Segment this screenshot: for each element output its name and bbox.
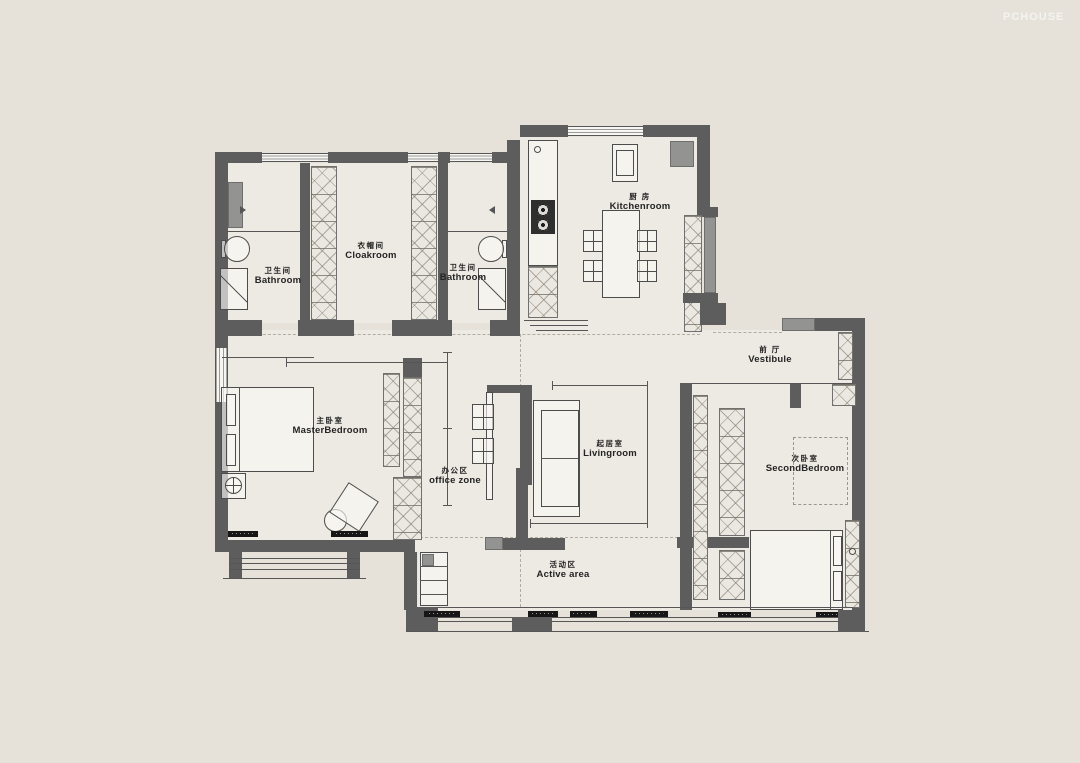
room-label-en: office zone — [429, 475, 481, 486]
room-label-zh: 衣帽间 — [345, 241, 396, 250]
dimension-line — [286, 362, 447, 363]
wall — [683, 293, 718, 303]
window — [450, 153, 492, 162]
shower-tray — [220, 268, 248, 310]
wall — [438, 163, 448, 320]
pipe-shaft — [228, 182, 243, 228]
shelf-line — [420, 594, 448, 595]
wall — [697, 137, 710, 207]
bedside-cabinet — [845, 520, 860, 608]
room-label-en: Bathroom — [255, 275, 301, 286]
wardrobe-cabinet — [383, 373, 400, 467]
flue-duct — [670, 141, 694, 167]
wall — [643, 125, 710, 137]
shelf-line — [420, 566, 448, 567]
appliance — [422, 554, 434, 566]
window-pier — [512, 617, 552, 631]
counter-fixture — [534, 146, 541, 153]
window — [262, 153, 328, 162]
shoe-cabinet — [832, 384, 856, 406]
bay-window-sill — [223, 578, 366, 579]
kitchen-sink — [612, 144, 638, 182]
wardrobe-cabinet — [719, 550, 745, 600]
balcony-window-glass — [418, 617, 853, 618]
dimension-line — [552, 385, 648, 386]
wall — [328, 152, 408, 163]
room-label-vestibule: 前 厅 Vestibule — [748, 345, 792, 365]
curtain-line — [222, 357, 314, 358]
room-label-kitchen: 厨 房 Kitchenroom — [610, 192, 671, 212]
kitchen-cabinet — [528, 266, 558, 318]
wall — [680, 548, 692, 610]
pillow — [833, 571, 842, 601]
wall — [680, 383, 692, 537]
wardrobe-cabinet — [411, 166, 437, 320]
threshold-step-line — [536, 330, 588, 331]
wardrobe-cabinet — [719, 408, 745, 536]
wall — [228, 320, 262, 336]
pillow — [226, 394, 236, 426]
room-label-bathroom-1: 卫生间 Bathroom — [255, 266, 301, 286]
wardrobe-cabinet — [311, 166, 337, 320]
bay-window-glass — [229, 558, 360, 559]
wall — [215, 540, 415, 552]
wall — [228, 152, 262, 163]
desk-chair — [472, 438, 494, 464]
wardrobe-cabinet — [403, 377, 422, 477]
window-tag — [570, 611, 597, 617]
room-label-living-room: 起居室 Livingroom — [583, 439, 637, 459]
toilet — [478, 236, 504, 262]
room-label-cloakroom: 衣帽间 Cloakroom — [345, 241, 396, 261]
wall — [503, 538, 565, 550]
shower-partition-line — [228, 231, 300, 232]
wall-light — [704, 217, 716, 293]
room-label-second-bedroom: 次卧室 SecondBedroom — [766, 454, 845, 474]
wall — [298, 320, 354, 336]
pillow — [833, 536, 842, 566]
threshold-step-line — [530, 325, 588, 326]
wall — [490, 320, 520, 336]
dimension-line — [647, 385, 648, 523]
wall — [300, 163, 310, 320]
room-label-zh: 主卧室 — [293, 416, 368, 425]
shoe-cabinet — [838, 332, 853, 380]
room-label-en: Kitchenroom — [610, 201, 671, 212]
window-tag — [528, 611, 558, 617]
wall — [516, 468, 528, 546]
dining-chair — [583, 230, 603, 252]
dimension-tick — [443, 505, 452, 506]
room-label-zh: 厨 房 — [610, 192, 671, 201]
wall — [790, 383, 801, 408]
cabinet-knob — [849, 548, 856, 555]
room-label-zh: 次卧室 — [766, 454, 845, 463]
shower-head-icon — [489, 206, 495, 214]
reference-dashed-line — [713, 332, 782, 333]
sofa-seam — [541, 458, 578, 459]
shelf-line — [420, 580, 448, 581]
dining-table — [602, 210, 640, 298]
dimension-tick — [286, 358, 287, 367]
window — [568, 126, 643, 136]
dining-chair — [583, 260, 603, 282]
floor-plan: 卫生间 Bathroom 衣帽间 Cloakroom 卫生间 Bathroom … — [0, 0, 1080, 763]
bay-window-pier — [229, 552, 242, 578]
headboard-line — [239, 388, 240, 471]
room-label-en: Cloakroom — [345, 250, 396, 261]
pillow — [226, 434, 236, 466]
room-label-zh: 卫生间 — [255, 266, 301, 275]
wall — [520, 125, 568, 137]
window-pier — [838, 610, 865, 632]
dimension-tick — [647, 519, 648, 528]
dimension-tick — [443, 428, 452, 429]
wall — [700, 303, 726, 325]
room-label-master-bedroom: 主卧室 MasterBedroom — [293, 416, 368, 436]
window-tag — [331, 531, 368, 537]
window-tag — [424, 611, 460, 617]
sink-basin — [616, 150, 634, 176]
fan-symbol — [225, 477, 242, 494]
balcony-window-frame — [418, 607, 853, 608]
burner-icon — [537, 204, 549, 216]
dining-chair — [637, 230, 657, 252]
wardrobe-cabinet — [393, 477, 422, 540]
room-boundary-line — [692, 383, 853, 384]
headboard-line — [830, 531, 831, 609]
room-label-office-zone: 办公区 office zone — [429, 466, 481, 486]
burner-icon — [537, 219, 549, 231]
bay-window-glass — [229, 563, 360, 564]
wall — [392, 320, 452, 336]
room-label-active-area: 活动区 Active area — [537, 560, 590, 580]
room-label-zh: 前 厅 — [748, 345, 792, 354]
balcony-window-glass — [418, 621, 853, 622]
wall — [438, 152, 450, 163]
room-label-zh: 起居室 — [583, 439, 637, 448]
door-panel — [485, 537, 503, 550]
dimension-tick — [443, 352, 452, 353]
desk-chair — [472, 404, 494, 430]
bay-window-glass — [229, 569, 360, 570]
room-label-en: MasterBedroom — [293, 425, 368, 436]
room-label-zh: 活动区 — [537, 560, 590, 569]
room-label-en: Bathroom — [440, 272, 486, 283]
shower-partition-line — [448, 231, 507, 232]
dining-chair — [637, 260, 657, 282]
room-label-zh: 办公区 — [429, 466, 481, 475]
room-label-en: Active area — [537, 569, 590, 580]
toilet — [224, 236, 250, 262]
window — [408, 153, 438, 162]
bay-window-pier — [347, 552, 360, 578]
room-label-en: Vestibule — [748, 354, 792, 365]
room-label-bathroom-2: 卫生间 Bathroom — [440, 263, 486, 283]
wall — [507, 140, 520, 320]
window-tag — [228, 531, 258, 537]
wardrobe-cabinet — [693, 395, 708, 600]
room-label-zh: 卫生间 — [440, 263, 486, 272]
dimension-tick — [530, 519, 531, 528]
wall — [404, 552, 417, 610]
shower-head-icon — [240, 206, 246, 214]
dimension-tick — [552, 381, 553, 390]
stove — [531, 200, 555, 234]
room-label-en: SecondBedroom — [766, 463, 845, 474]
room-label-en: Livingroom — [583, 448, 637, 459]
wall — [403, 358, 422, 377]
threshold-step-line — [524, 320, 588, 321]
wall — [677, 537, 749, 548]
entry-door — [782, 318, 815, 331]
window-tag — [630, 611, 668, 617]
dimension-line — [530, 523, 648, 524]
watermark: PCHOUSE — [1003, 11, 1064, 23]
balcony-window-sill — [406, 631, 869, 632]
